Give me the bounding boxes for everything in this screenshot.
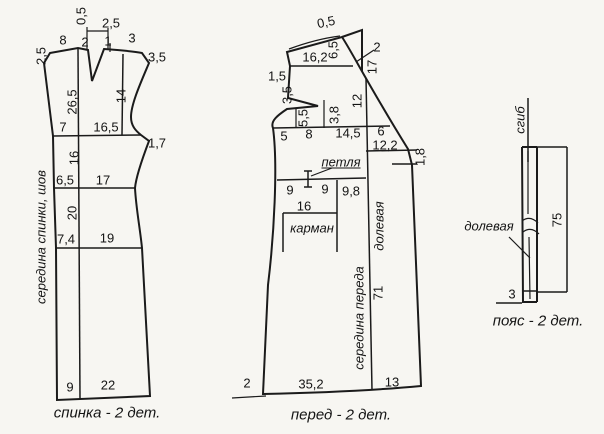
back-measurement-16,5: 16,5 <box>93 121 118 134</box>
front-measurement-6,5: 6,5 <box>327 41 340 59</box>
back-measurement-6,5: 6,5 <box>56 174 74 187</box>
back-outline <box>44 48 150 400</box>
front-measurement-12,2: 12,2 <box>372 139 397 152</box>
front-piece <box>232 30 421 398</box>
front-button-line <box>277 178 366 180</box>
front-grainline-label: долевая <box>373 201 386 250</box>
front-hem-extension <box>232 396 266 398</box>
belt-piece <box>496 98 567 303</box>
back-measurement-26,5: 26,5 <box>66 89 79 114</box>
buttonhole-label: петля <box>321 156 360 169</box>
pattern-stage: спинка - 2 дет. перед - 2 дет. пояс - 2 … <box>0 0 604 434</box>
back-measurement-19: 19 <box>100 232 114 245</box>
front-measurement-16,2: 16,2 <box>302 51 327 64</box>
front-measurement-6: 6 <box>377 125 384 138</box>
front-measurement-5: 5 <box>280 130 287 143</box>
front-chest-line <box>273 126 390 128</box>
front-measurement-13: 13 <box>385 376 399 389</box>
pattern-linework <box>0 0 604 434</box>
back-chest-line <box>53 135 141 136</box>
back-measurement-1: 1 <box>104 35 111 48</box>
front-caption: перед - 2 дет. <box>291 408 391 423</box>
back-measurement-3: 3 <box>128 32 135 45</box>
back-center-seam-label: середина спинки, шов <box>35 170 48 304</box>
front-measurement-5,5: 5,5 <box>297 109 310 127</box>
front-center-label: середина переда <box>353 266 366 370</box>
front-measurement-1,8: 1,8 <box>414 148 427 166</box>
back-caption: спинка - 2 дет. <box>54 406 161 421</box>
front-measurement-2: 2 <box>373 41 380 54</box>
back-measurement-16: 16 <box>68 151 81 165</box>
front-measurement-12: 12 <box>351 94 364 108</box>
belt-measurement-3: 3 <box>508 288 515 301</box>
back-measurement-0,5: 0,5 <box>75 7 88 25</box>
fold-label: сгиб <box>514 106 527 133</box>
back-measurement-9: 9 <box>66 381 73 394</box>
back-measurement-7,4: 7,4 <box>57 233 75 246</box>
belt-grainline-label: долевая <box>464 220 513 233</box>
front-measurement-0,5: 0,5 <box>316 14 336 30</box>
back-measurement-20: 20 <box>66 206 79 220</box>
front-measurement-3,5: 3,5 <box>281 86 294 104</box>
front-measurement-9,8: 9,8 <box>342 185 360 198</box>
front-measurement-17: 17 <box>366 60 379 74</box>
front-measurement-14,5: 14,5 <box>335 127 360 140</box>
belt-measurement-75: 75 <box>551 213 564 227</box>
front-measurement-2: 2 <box>243 377 250 390</box>
back-measurement-22: 22 <box>101 379 115 392</box>
front-measurement-35,2: 35,2 <box>298 378 323 391</box>
pocket-label: карман <box>290 222 334 235</box>
back-measurement-17: 17 <box>96 174 110 187</box>
belt-grain-leader <box>509 237 530 258</box>
front-measurement-71: 71 <box>372 286 385 300</box>
back-measurement-1,7: 1,7 <box>148 137 166 150</box>
back-measurement-3,5: 3,5 <box>148 51 166 64</box>
front-measurement-3,8: 3,8 <box>328 106 341 124</box>
front-measurement-9: 9 <box>321 183 328 196</box>
back-piece <box>44 27 150 400</box>
back-measurement-2: 2 <box>81 36 88 49</box>
front-measurement-9: 9 <box>286 184 293 197</box>
back-measurement-8: 8 <box>59 34 66 47</box>
front-measurement-1,5: 1,5 <box>268 70 286 83</box>
back-measurement-2,5: 2,5 <box>102 17 120 30</box>
front-measurement-16: 16 <box>297 200 311 213</box>
front-measurement-8: 8 <box>305 128 312 141</box>
belt-caption: пояс - 2 дет. <box>493 314 584 329</box>
back-measurement-14: 14 <box>115 89 128 103</box>
back-measurement-2,5: 2,5 <box>35 47 48 65</box>
belt-inner-lines <box>528 151 530 299</box>
back-measurement-7: 7 <box>59 121 66 134</box>
